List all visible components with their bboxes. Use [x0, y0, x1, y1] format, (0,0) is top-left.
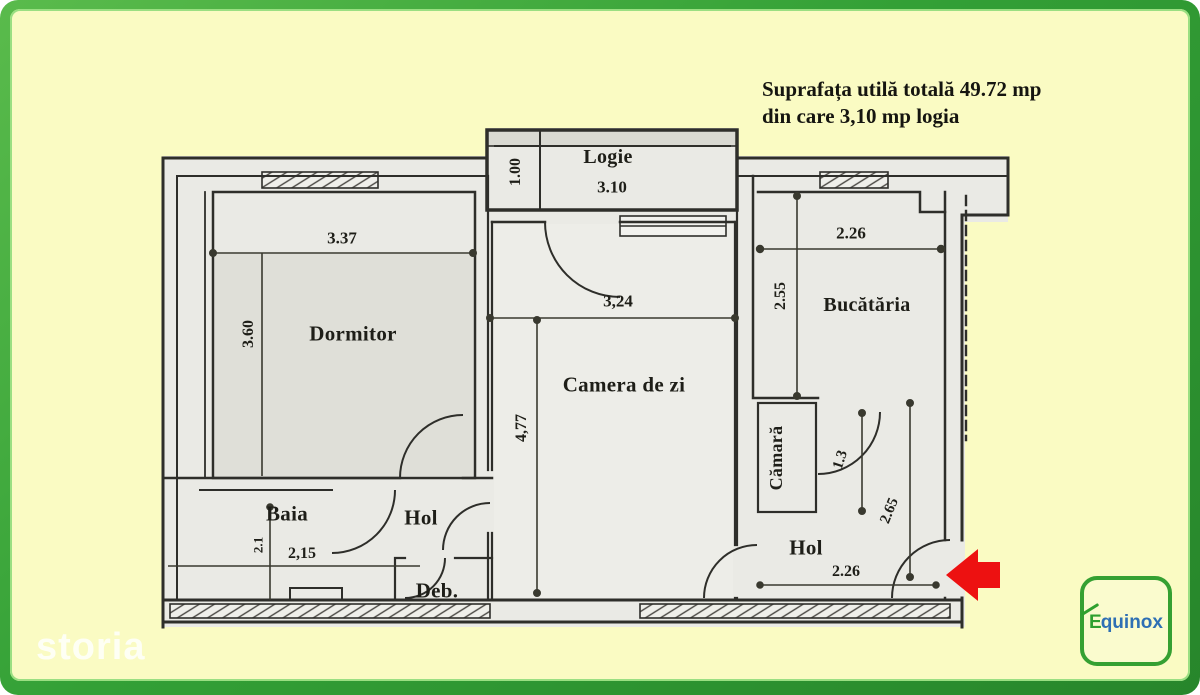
- room-label-hol-intrare: Hol: [789, 538, 823, 559]
- dim-hol-latime: 2.26: [832, 564, 860, 580]
- room-label-baia: Baia: [266, 504, 308, 525]
- dim-logie-latime: 3.10: [597, 179, 627, 196]
- equinox-logo: Equinox: [1080, 576, 1172, 666]
- camera-de-zi-floor: [494, 224, 733, 598]
- dim-bucataria-inaltime: 2.55: [773, 282, 789, 310]
- equinox-wordmark: Equinox: [1089, 612, 1163, 634]
- summary-line-1: Suprafața utilă totală 49.72 mp: [762, 76, 1041, 103]
- equinox-e-icon: E: [1089, 612, 1102, 633]
- dim-camera-latime: 3,24: [603, 293, 633, 310]
- dim-logie-adancime: 1.00: [508, 158, 524, 186]
- storia-watermark: storia: [36, 626, 145, 669]
- bottom-wall-hatch-left: [170, 604, 490, 618]
- floor-plan-page: Suprafața utilă totală 49.72 mp din care…: [0, 0, 1200, 695]
- bottom-wall-hatch-right: [640, 604, 950, 618]
- summary-line-2: din care 3,10 mp logia: [762, 103, 1041, 130]
- room-label-camara: Cămară: [767, 426, 785, 491]
- dormitor-floor: [215, 254, 473, 476]
- dim-baia-inaltime: 2.1: [252, 537, 265, 553]
- dim-camera-inaltime: 4,77: [514, 414, 530, 442]
- room-label-dormitor: Dormitor: [309, 324, 397, 345]
- dim-dormitor-inaltime: 3.60: [241, 320, 257, 348]
- dim-dormitor-latime: 3.37: [327, 230, 357, 247]
- dim-baia-latime: 2,15: [288, 546, 316, 562]
- room-label-camera-de-zi: Camera de zi: [563, 375, 686, 396]
- room-label-debara: Deb.: [416, 581, 459, 602]
- room-label-logie: Logie: [583, 147, 632, 167]
- area-summary: Suprafața utilă totală 49.72 mp din care…: [762, 76, 1041, 130]
- logie-wall-band: [487, 130, 737, 146]
- dormitor-window: [262, 172, 378, 188]
- bucatarie-window: [820, 172, 888, 188]
- dim-bucataria-latime: 2.26: [836, 225, 866, 242]
- room-label-bucataria: Bucătăria: [823, 295, 910, 315]
- room-label-hol-mic: Hol: [404, 508, 438, 529]
